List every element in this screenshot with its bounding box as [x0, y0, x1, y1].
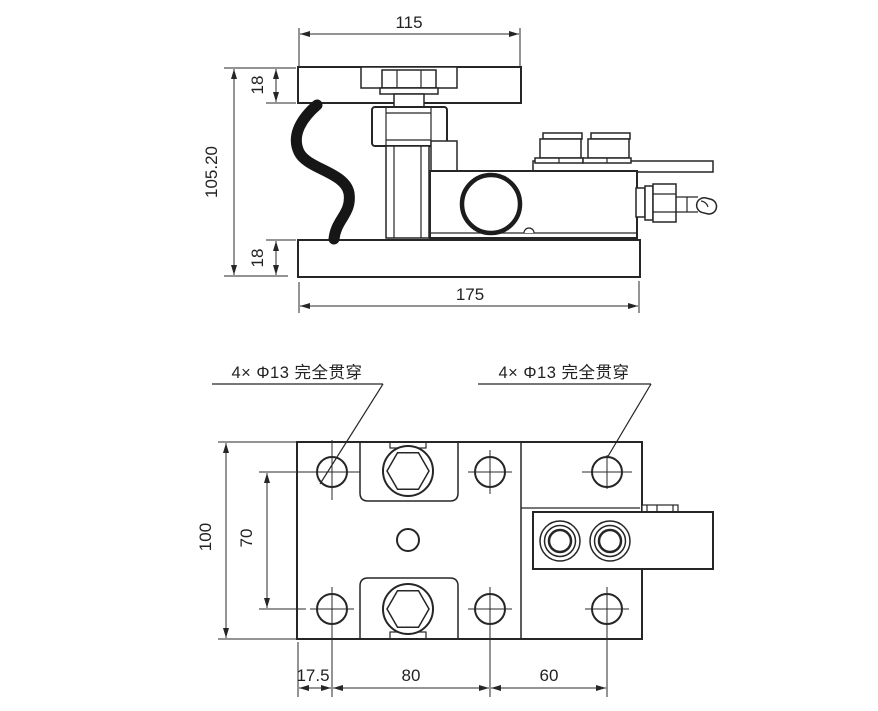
cable-gland — [636, 184, 718, 222]
dim-115: 115 — [299, 13, 520, 66]
dim-80-label: 80 — [402, 666, 421, 685]
notch-bump — [524, 228, 534, 233]
dim-18-bottom: 18 — [248, 240, 296, 275]
load-cell-boss — [431, 141, 457, 171]
plan-gland-tabs — [642, 505, 678, 512]
dim-70-label: 70 — [237, 529, 256, 548]
cable — [296, 105, 349, 239]
bolt-cap-1 — [535, 133, 583, 163]
bolt-cap-2 — [583, 133, 631, 163]
side-view: 115 18 105.20 18 175 — [202, 13, 718, 313]
dim-18-top-label: 18 — [248, 76, 267, 95]
dim-105-label: 105.20 — [202, 146, 221, 198]
dim-18-top: 18 — [248, 69, 296, 103]
threaded-rod — [386, 146, 429, 238]
dim-115-label: 115 — [395, 13, 422, 32]
cable-end — [695, 196, 718, 215]
dim-70: 70 — [237, 472, 306, 609]
dim-175: 175 — [299, 281, 639, 313]
top-hex-bolt — [383, 446, 433, 496]
dim-18-bottom-label: 18 — [248, 249, 267, 268]
washer — [380, 88, 438, 94]
plan-view: 4× Φ13 完全贯穿 4× Φ13 完全贯穿 100 70 — [196, 363, 713, 697]
bottom-hex-bolt — [383, 584, 433, 634]
hole-note-right-label: 4× Φ13 完全贯穿 — [499, 363, 630, 382]
dim-17-5-label: 17.5 — [296, 666, 329, 685]
dim-100-label: 100 — [196, 523, 215, 551]
dim-60-label: 60 — [540, 666, 559, 685]
suspension-block — [372, 107, 447, 146]
bolt-neck — [394, 94, 424, 107]
dim-105: 105.20 — [202, 68, 296, 276]
bottom-plate — [298, 240, 640, 277]
dim-175-label: 175 — [456, 285, 484, 304]
technical-drawing: 115 18 105.20 18 175 — [0, 0, 878, 711]
blueprint-canvas: 115 18 105.20 18 175 — [0, 0, 878, 711]
hole-note-left-label: 4× Φ13 完全贯穿 — [232, 363, 363, 382]
